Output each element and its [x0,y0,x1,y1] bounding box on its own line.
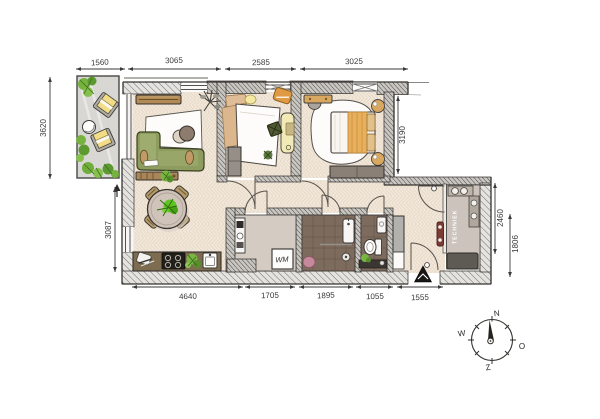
svg-text:WM: WM [275,254,290,264]
svg-text:O: O [519,342,525,351]
svg-text:2460: 2460 [496,209,505,227]
svg-text:3065: 3065 [165,56,184,66]
svg-text:1705: 1705 [261,291,280,301]
svg-text:N: N [493,309,500,319]
svg-text:1895: 1895 [317,291,336,301]
svg-text:1806: 1806 [511,235,520,253]
svg-text:3025: 3025 [345,57,364,67]
svg-text:1055: 1055 [366,292,385,302]
svg-text:TECHNIEK: TECHNIEK [453,209,459,244]
svg-text:3190: 3190 [398,126,407,144]
svg-text:3620: 3620 [39,119,48,137]
svg-text:4640: 4640 [179,292,198,302]
svg-text:2585: 2585 [252,58,271,68]
svg-text:1555: 1555 [411,293,430,303]
svg-text:1560: 1560 [91,58,110,68]
svg-text:3087: 3087 [104,221,113,239]
